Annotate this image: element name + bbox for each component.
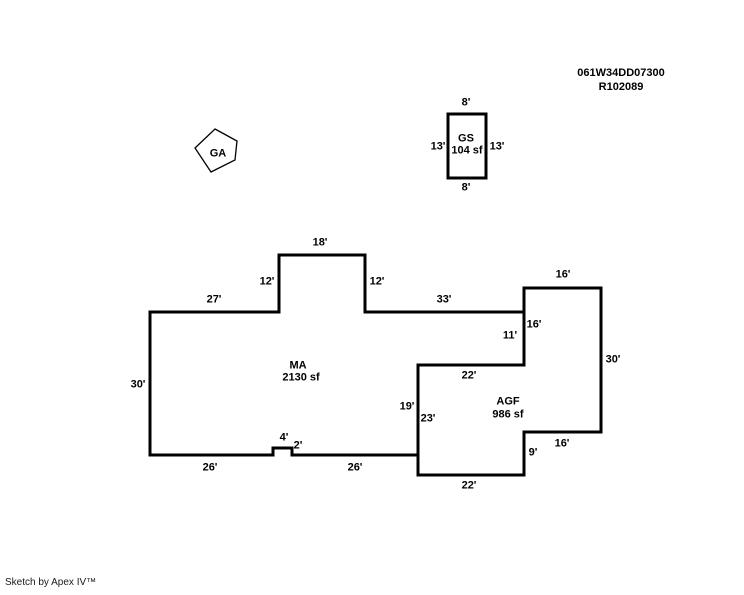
dimension-label-gs-left: 13' <box>431 142 446 153</box>
dimension-label-ma-notch-side: 2' <box>294 441 303 452</box>
footer-credit: Sketch by Apex IV™ <box>5 577 96 588</box>
dimension-label-agf-step-side: 9' <box>529 448 538 459</box>
dimension-label-agf-top-inner: 22' <box>462 371 477 382</box>
dimension-label-ma-right: 11' <box>503 331 517 342</box>
dimension-label-ma-top-left: 27' <box>207 295 222 306</box>
dimension-label-ma-bottom-right: 26' <box>348 463 363 474</box>
dimension-label-agf-left-upper: 16' <box>527 320 542 331</box>
dimension-label-gs-top: 8' <box>462 98 471 109</box>
dimension-label-ma-bump-top: 18' <box>313 238 328 249</box>
dimension-label-gs-bottom: 8' <box>462 183 471 194</box>
agf-outline <box>418 288 601 475</box>
dimension-label-ma-left: 30' <box>131 380 146 391</box>
dimension-label-ma-notch-top: 4' <box>280 433 289 444</box>
agf-area: 986 sf <box>492 410 523 421</box>
ma-label: MA <box>289 361 306 372</box>
dimension-label-agf-right: 30' <box>606 355 621 366</box>
ga-label: GA <box>210 149 227 160</box>
ma-outline <box>150 255 524 455</box>
dimension-label-agf-left-lower: 23' <box>421 414 436 425</box>
agf-label: AGF <box>496 397 519 408</box>
dimension-label-agf-top: 16' <box>556 270 571 281</box>
dimension-label-agf-bottom: 22' <box>462 481 477 492</box>
ma-area: 2130 sf <box>282 373 319 384</box>
sketch-canvas: 061W34DD07300 R102089 GA GS 104 sf MA 21… <box>0 0 744 595</box>
gs-label: GS <box>458 134 474 145</box>
dimension-label-ma-bottom-left: 26' <box>203 463 218 474</box>
dimension-label-ma-bump-right: 12' <box>370 277 385 288</box>
dimension-label-ma-bump-left: 12' <box>260 277 275 288</box>
dimension-label-gs-right: 13' <box>490 142 505 153</box>
dimension-label-ma-top-right: 33' <box>437 295 452 306</box>
parcel-number: 061W34DD07300 <box>577 66 664 80</box>
dimension-label-agf-bottom-step: 16' <box>555 439 570 450</box>
dimension-label-ma-lower-right: 19' <box>400 402 415 413</box>
gs-area: 104 sf <box>451 146 482 157</box>
record-number: R102089 <box>577 80 664 94</box>
title-block: 061W34DD07300 R102089 <box>577 66 664 94</box>
